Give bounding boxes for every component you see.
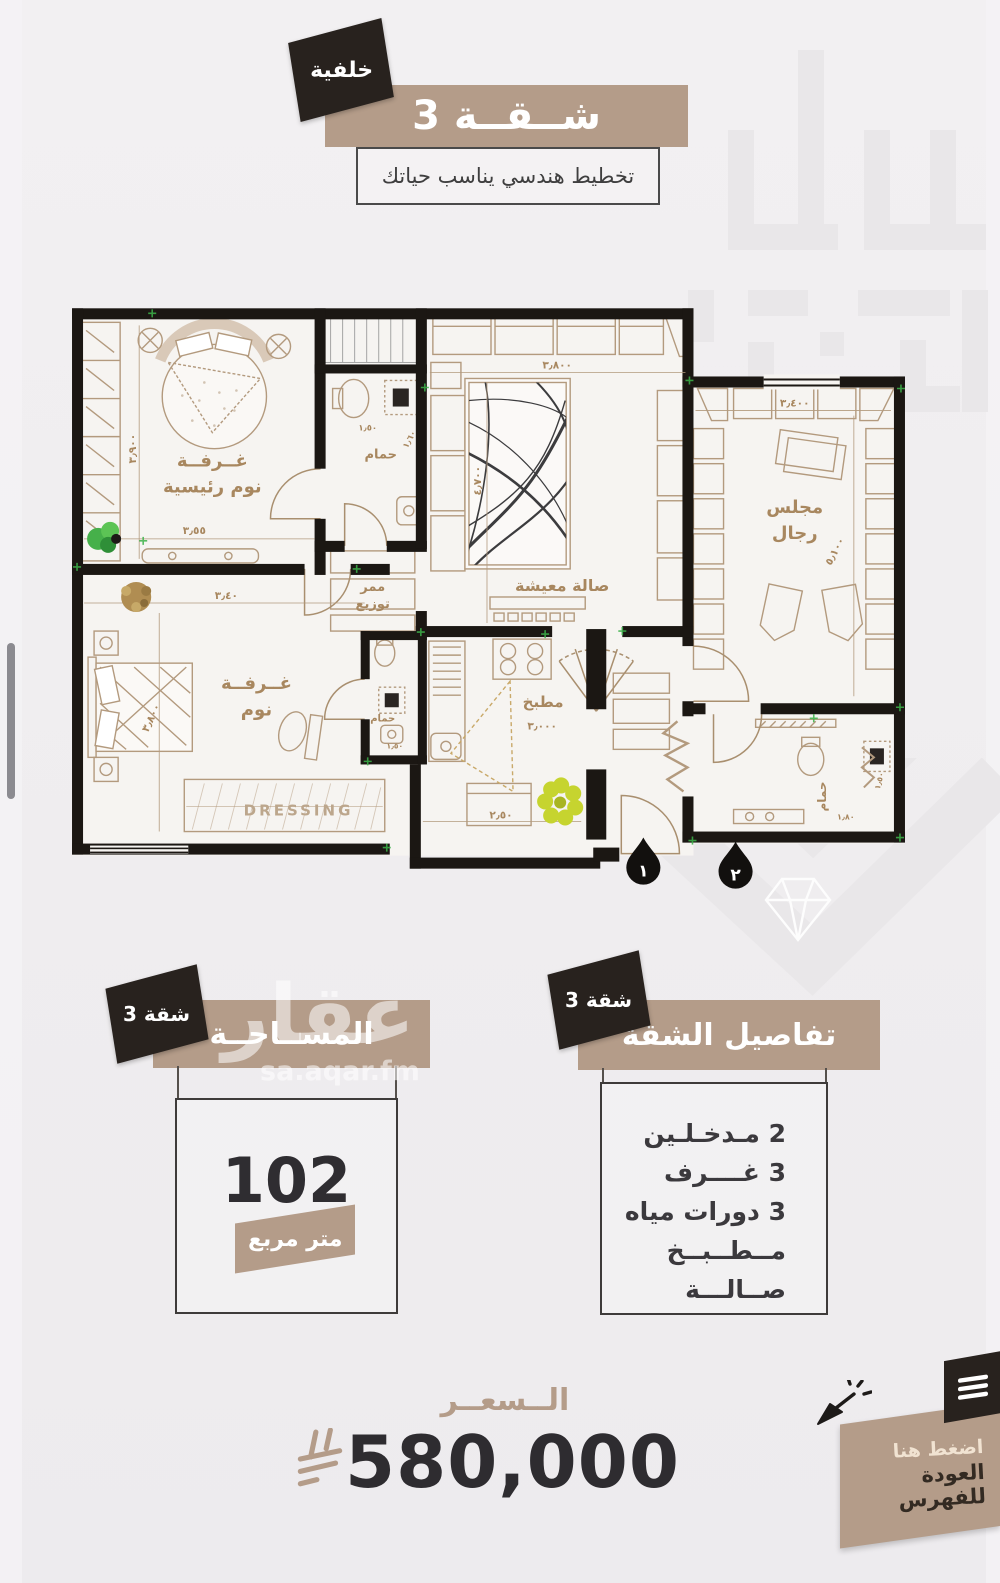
svg-text:٤٫٧٠٠: ٤٫٧٠٠ (472, 466, 484, 496)
scrollbar-thumb[interactable] (7, 643, 15, 799)
area-unit: متر مربع (248, 1227, 343, 1252)
header-corner-badge-label: خلفية (310, 58, 373, 83)
hamburger-icon (958, 1372, 988, 1401)
entrance-marker-2: ٢ (719, 842, 753, 889)
area-badge-label: شقة 3 (123, 1002, 190, 1026)
svg-text:١٫٨٠: ١٫٨٠ (837, 813, 855, 822)
detail-item-kitchen: مــطــبــخ (602, 1231, 786, 1270)
details-box: 2 مـدخـلـين 3 غــــرف 3 دورات مياه مــطـ… (600, 1082, 828, 1315)
bathroom-small-label: حمام (370, 713, 395, 724)
detail-item-bathrooms: 3 دورات مياه (602, 1192, 786, 1231)
svg-text:٣٫٤٠: ٣٫٤٠ (215, 590, 238, 602)
svg-text:٢٫٥٠: ٢٫٥٠ (489, 810, 512, 822)
flyer-page: شــقــة 3 تخطيط هندسي يناسب حياتك خلفية (0, 0, 1000, 1583)
svg-text:٢: ٢ (730, 866, 741, 886)
svg-text:١٫٥٠: ١٫٥٠ (358, 424, 377, 434)
price-label: الــسعــر (380, 1383, 630, 1418)
page-subtitle: تخطيط هندسي يناسب حياتك (382, 164, 635, 188)
area-leg-left (177, 1066, 179, 1100)
svg-text:توزيع: توزيع (356, 597, 390, 612)
bathroom-guest-label: حمام (815, 781, 830, 811)
svg-text:٣٫٨٠٠: ٣٫٨٠٠ (542, 359, 572, 371)
master-bedroom-label: غــرفــة (177, 451, 248, 472)
page-title: شــقــة 3 (412, 93, 601, 139)
bathroom-top-label: حمام (364, 448, 397, 463)
floor-plan: غــرفــة نوم رئيسية ٣٫٩٠٠ ٣٫٥٥ حمام ١٫٥٠… (64, 300, 916, 902)
living-hall-label: صالة معيشة (515, 576, 609, 595)
corridor-label: ممر (359, 580, 385, 595)
detail-item-entrances: 2 مـدخـلـين (602, 1114, 786, 1153)
details-title: تفاصيل الشقة (622, 1018, 836, 1053)
price-value: 580,000 (345, 1420, 665, 1504)
back-button-label: العودة للفهرس (840, 1460, 986, 1515)
svg-text:١: ١ (638, 862, 648, 882)
area-value: 102 (177, 1144, 396, 1217)
dressing-label: DRESSING (244, 802, 354, 820)
click-cursor-icon (810, 1380, 872, 1440)
area-leg-right (395, 1066, 397, 1100)
svg-text:٣٫٩٠٠: ٣٫٩٠٠ (127, 434, 139, 464)
bedroom2-label: غــرفــة (221, 673, 292, 694)
svg-text:نوم رئيسية: نوم رئيسية (163, 477, 262, 498)
kitchen-label: مطبخ (523, 693, 564, 711)
dry-plant-icon (121, 582, 151, 612)
detail-item-hall: صــالـــة (602, 1270, 786, 1309)
menu-badge[interactable] (944, 1351, 1000, 1423)
area-title: المســاحــة (209, 1017, 373, 1052)
svg-text:١٫٥٠: ١٫٥٠ (387, 741, 404, 750)
saudi-riyal-icon (294, 1428, 346, 1490)
area-box: 102 متر مربع (175, 1098, 398, 1314)
details-badge-label: شقة 3 (565, 988, 632, 1012)
header-subtitle-box: تخطيط هندسي يناسب حياتك (356, 147, 660, 205)
majlis-label: مجلس (766, 497, 823, 518)
detail-item-rooms: 3 غــــرف (602, 1153, 786, 1192)
svg-text:نوم: نوم (241, 699, 272, 720)
svg-text:٣٫٤٠٠: ٣٫٤٠٠ (780, 398, 810, 410)
svg-text:٣٫٥٥: ٣٫٥٥ (183, 525, 206, 537)
svg-text:رجال: رجال (772, 523, 818, 544)
svg-text:٣٫٠٠٠: ٣٫٠٠٠ (527, 720, 557, 732)
